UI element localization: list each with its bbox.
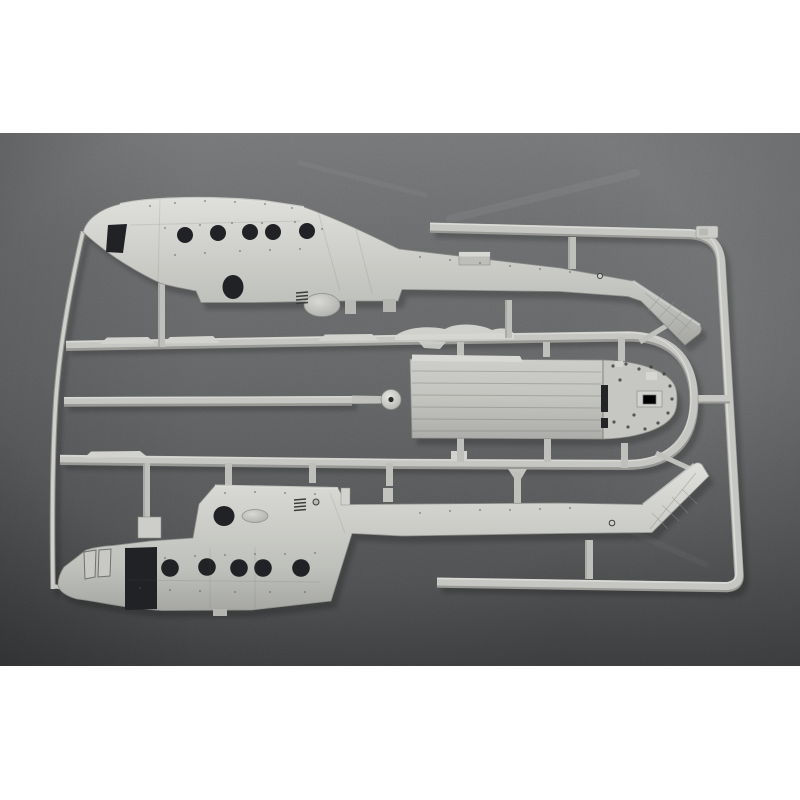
sprue-photo-svg [0, 133, 800, 666]
lower-door-opening [125, 547, 157, 610]
product-photo [0, 133, 800, 666]
deck-slot-short [601, 418, 608, 428]
lower-deck-opening [214, 506, 235, 526]
boom-hole [598, 274, 603, 279]
sprue-letter-tag [696, 226, 718, 238]
upper-exhaust-pod [304, 294, 340, 317]
deck-slot-long [601, 385, 608, 412]
floor-panel [410, 355, 677, 440]
lower-blister [242, 510, 268, 523]
nose-roof-bump [138, 517, 161, 538]
photo-page [0, 0, 800, 800]
lower-boom-hole [609, 520, 615, 526]
upper-belly-opening [223, 275, 244, 299]
